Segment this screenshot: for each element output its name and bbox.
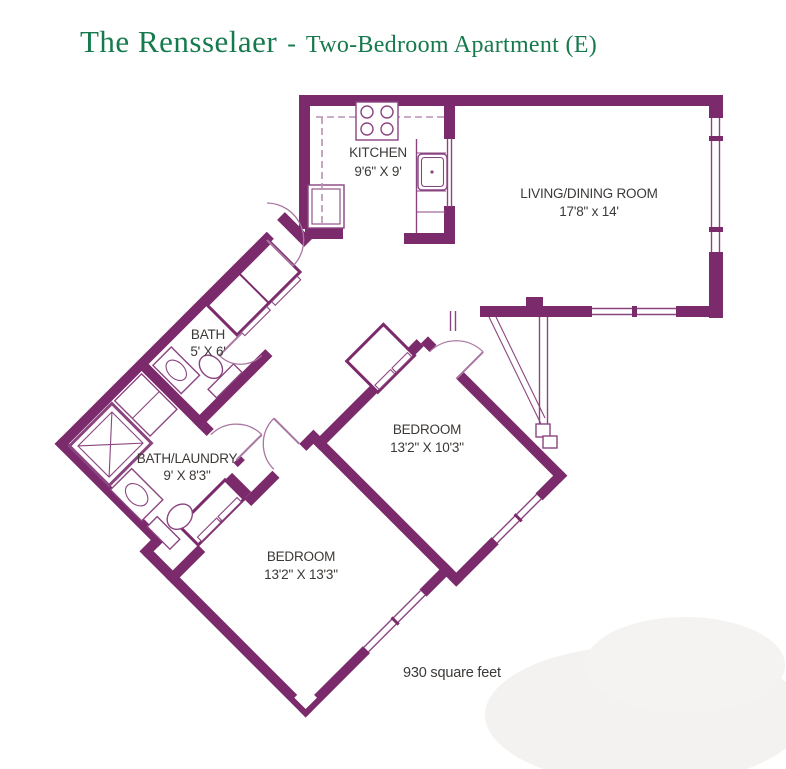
bedroom-upper-dims: 13'2" X 10'3" [390,440,464,455]
bedroom-lower-label: BEDROOM [267,549,335,564]
bath-laundry-dims: 9' X 8'3" [163,468,211,483]
stove-icon [356,102,398,140]
bath-dims: 5' X 6' [190,344,225,359]
title-separator: - [287,29,296,59]
bedroom-upper-label: BEDROOM [393,422,461,437]
living-label: LIVING/DINING ROOM [520,186,657,201]
plan-name: The Rensselaer [80,24,277,60]
bedroom-lower-dims: 13'2" X 13'3" [264,567,338,582]
ortho-walls [281,95,723,318]
living-right-window [709,118,723,252]
bedroom-upper-door [429,325,483,379]
plan-subtitle: Two-Bedroom Apartment (E) [306,32,597,59]
living-dims: 17'8" x 14' [559,204,619,219]
bath-laundry-label: BATH/LAUNDRY [137,451,238,466]
diagonal-wing [43,184,587,728]
living-bottom-window [592,306,676,317]
kitchen-label: KITCHEN [349,145,407,160]
floorplan-drawing: KITCHEN 9'6" X 9' LIVING/DINING ROOM 17'… [0,0,786,769]
bedroom-upper-closet [347,324,415,392]
bath-label: BATH [191,327,225,342]
floorplan-page: The Rensselaer - Two-Bedroom Apartment (… [0,0,786,769]
background-shade [485,617,786,769]
page-title: The Rensselaer - Two-Bedroom Apartment (… [80,24,597,60]
hall-closet [207,242,304,339]
kitchen-sink-icon [418,154,447,190]
bedroom-lower-door [248,418,299,469]
kitchen-dims: 9'6" X 9' [354,164,401,179]
area-label: 930 square feet [403,665,501,681]
